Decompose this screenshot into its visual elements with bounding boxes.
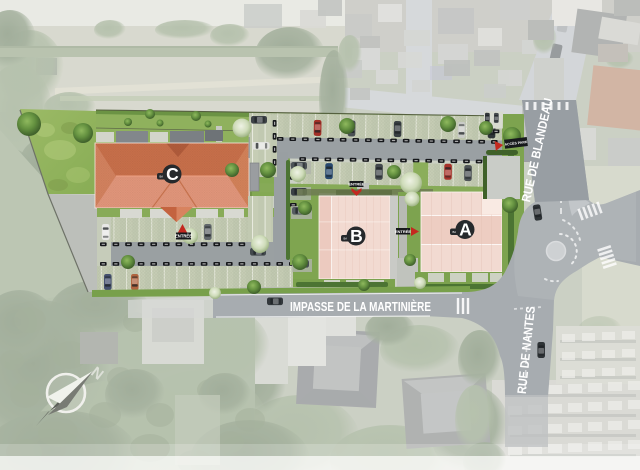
- svg-text:C: C: [166, 164, 179, 184]
- svg-text:ENTRÉE: ENTRÉE: [348, 182, 365, 187]
- svg-text:IMPASSE DE LA MARTINIÈRE: IMPASSE DE LA MARTINIÈRE: [290, 299, 431, 314]
- svg-text:ENTRÉE: ENTRÉE: [175, 234, 192, 239]
- svg-text:ENTRÉE: ENTRÉE: [395, 229, 412, 234]
- svg-text:B: B: [350, 226, 363, 246]
- svg-text:A: A: [459, 220, 472, 240]
